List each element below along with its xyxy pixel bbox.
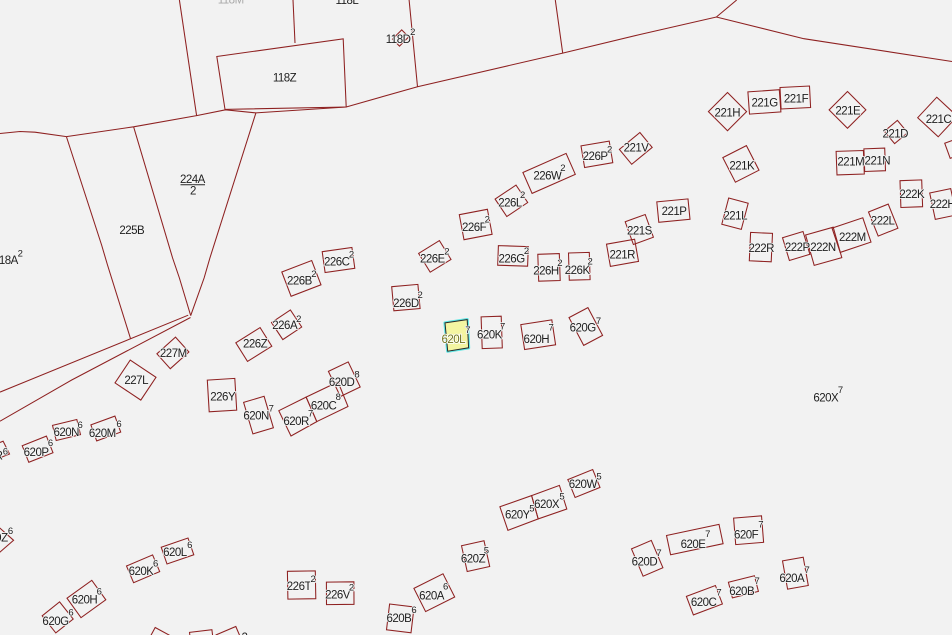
- svg-text:620X: 620X: [534, 499, 560, 511]
- svg-text:7: 7: [755, 576, 760, 587]
- svg-text:620Z: 620Z: [461, 554, 486, 566]
- svg-text:7: 7: [465, 325, 470, 336]
- svg-text:118M: 118M: [218, 0, 244, 7]
- svg-text:2: 2: [410, 27, 415, 38]
- svg-text:226Y: 226Y: [210, 392, 236, 404]
- svg-text:221E: 221E: [835, 106, 861, 118]
- svg-text:620L: 620L: [163, 547, 188, 559]
- svg-text:226E: 226E: [420, 253, 446, 265]
- svg-text:221K: 221K: [729, 161, 755, 173]
- svg-text:620H: 620H: [524, 334, 550, 346]
- svg-text:221D: 221D: [882, 129, 908, 141]
- svg-text:226Z: 226Z: [243, 338, 268, 350]
- svg-text:6: 6: [153, 559, 158, 570]
- svg-text:620N: 620N: [243, 411, 269, 423]
- svg-text:6: 6: [68, 608, 73, 619]
- svg-text:221L: 221L: [723, 211, 748, 223]
- svg-text:620F: 620F: [734, 529, 759, 541]
- svg-text:222R: 222R: [748, 243, 774, 255]
- svg-text:221V: 221V: [624, 143, 650, 155]
- svg-text:2: 2: [560, 163, 565, 174]
- svg-text:226T: 226T: [287, 581, 312, 593]
- svg-text:221C: 221C: [926, 114, 952, 126]
- svg-text:620A: 620A: [419, 591, 445, 603]
- svg-text:227M: 227M: [160, 348, 187, 360]
- svg-text:2: 2: [296, 314, 301, 325]
- svg-text:620Y: 620Y: [505, 510, 531, 522]
- svg-text:620C: 620C: [311, 401, 337, 413]
- svg-text:6: 6: [187, 540, 192, 551]
- svg-text:2: 2: [418, 290, 423, 301]
- svg-text:6: 6: [8, 526, 13, 537]
- svg-text:118L: 118L: [336, 0, 360, 7]
- svg-text:2: 2: [444, 246, 449, 257]
- svg-text:6: 6: [97, 587, 102, 598]
- svg-text:620K: 620K: [477, 330, 503, 342]
- svg-text:226P: 226P: [583, 151, 609, 163]
- svg-text:221M: 221M: [837, 156, 864, 168]
- svg-text:5: 5: [484, 545, 489, 556]
- svg-text:620L: 620L: [442, 334, 467, 346]
- svg-text:2: 2: [588, 256, 593, 267]
- svg-text:2: 2: [607, 145, 612, 156]
- svg-text:620D: 620D: [632, 557, 658, 569]
- svg-text:2: 2: [18, 249, 23, 260]
- svg-text:7: 7: [500, 322, 505, 333]
- svg-text:222M: 222M: [839, 232, 866, 244]
- svg-text:2: 2: [524, 246, 529, 257]
- svg-text:620E: 620E: [681, 539, 707, 551]
- svg-text:226A: 226A: [272, 320, 298, 332]
- svg-text:221R: 221R: [609, 250, 635, 262]
- svg-text:2: 2: [557, 258, 562, 269]
- svg-text:118A: 118A: [0, 255, 19, 267]
- svg-text:620B: 620B: [729, 586, 755, 598]
- svg-text:226C: 226C: [324, 257, 350, 269]
- svg-text:620B: 620B: [386, 613, 412, 625]
- svg-text:221S: 221S: [627, 226, 653, 238]
- svg-text:5: 5: [559, 492, 564, 503]
- svg-text:620X: 620X: [813, 393, 839, 405]
- svg-text:222L: 222L: [871, 216, 896, 228]
- svg-text:7: 7: [549, 323, 554, 334]
- svg-text:225B: 225B: [119, 225, 145, 237]
- svg-text:7: 7: [716, 588, 721, 599]
- svg-text:118Z: 118Z: [273, 73, 297, 85]
- svg-text:226B: 226B: [287, 276, 313, 288]
- svg-text:222K: 222K: [899, 189, 925, 201]
- svg-text:620D: 620D: [329, 377, 355, 389]
- svg-text:221G: 221G: [752, 98, 779, 110]
- svg-text:7: 7: [705, 529, 710, 540]
- svg-text:6: 6: [116, 419, 121, 430]
- svg-text:6: 6: [78, 420, 83, 431]
- svg-text:226V: 226V: [325, 589, 351, 601]
- svg-text:620W: 620W: [569, 479, 598, 491]
- svg-text:2: 2: [311, 574, 316, 585]
- svg-text:620G: 620G: [570, 323, 597, 335]
- svg-text:7: 7: [804, 565, 809, 576]
- svg-text:221F: 221F: [784, 93, 809, 105]
- svg-text:620M: 620M: [89, 428, 116, 440]
- svg-text:6: 6: [411, 605, 416, 616]
- svg-text:2: 2: [311, 269, 316, 280]
- svg-text:2: 2: [349, 583, 354, 594]
- svg-text:222H: 222H: [930, 199, 952, 211]
- svg-text:227L: 227L: [124, 375, 149, 387]
- svg-text:222N: 222N: [810, 242, 836, 254]
- svg-text:226H: 226H: [533, 266, 559, 278]
- svg-text:2: 2: [485, 214, 490, 225]
- svg-text:221N: 221N: [865, 156, 891, 168]
- svg-text:2: 2: [190, 186, 196, 198]
- svg-text:226G: 226G: [499, 254, 526, 266]
- svg-text:620R: 620R: [283, 416, 309, 428]
- svg-text:620K: 620K: [129, 566, 155, 578]
- svg-text:7: 7: [758, 519, 763, 530]
- svg-text:620P: 620P: [24, 447, 50, 459]
- svg-text:6: 6: [3, 446, 8, 457]
- svg-text:226F: 226F: [462, 222, 487, 234]
- svg-text:620G: 620G: [42, 616, 69, 628]
- svg-text:221P: 221P: [662, 206, 688, 218]
- svg-text:6: 6: [443, 581, 448, 592]
- svg-text:226D: 226D: [393, 298, 419, 310]
- svg-text:5: 5: [596, 472, 601, 483]
- svg-text:8: 8: [336, 392, 341, 403]
- svg-text:7: 7: [596, 316, 601, 327]
- svg-text:2: 2: [520, 190, 525, 201]
- svg-text:118D: 118D: [386, 34, 411, 46]
- svg-text:620Z: 620Z: [0, 533, 8, 545]
- svg-text:226W: 226W: [533, 170, 562, 182]
- svg-text:620C: 620C: [691, 597, 717, 609]
- svg-text:620A: 620A: [779, 573, 805, 585]
- svg-text:221H: 221H: [715, 107, 741, 119]
- svg-text:2: 2: [349, 250, 354, 261]
- svg-text:8: 8: [354, 370, 359, 381]
- svg-text:222P: 222P: [785, 242, 811, 254]
- svg-text:7: 7: [269, 403, 274, 414]
- svg-text:6: 6: [48, 438, 53, 449]
- svg-text:7: 7: [656, 548, 661, 559]
- svg-text:620N: 620N: [53, 427, 79, 439]
- svg-text:620H: 620H: [72, 595, 98, 607]
- svg-text:7: 7: [838, 385, 843, 396]
